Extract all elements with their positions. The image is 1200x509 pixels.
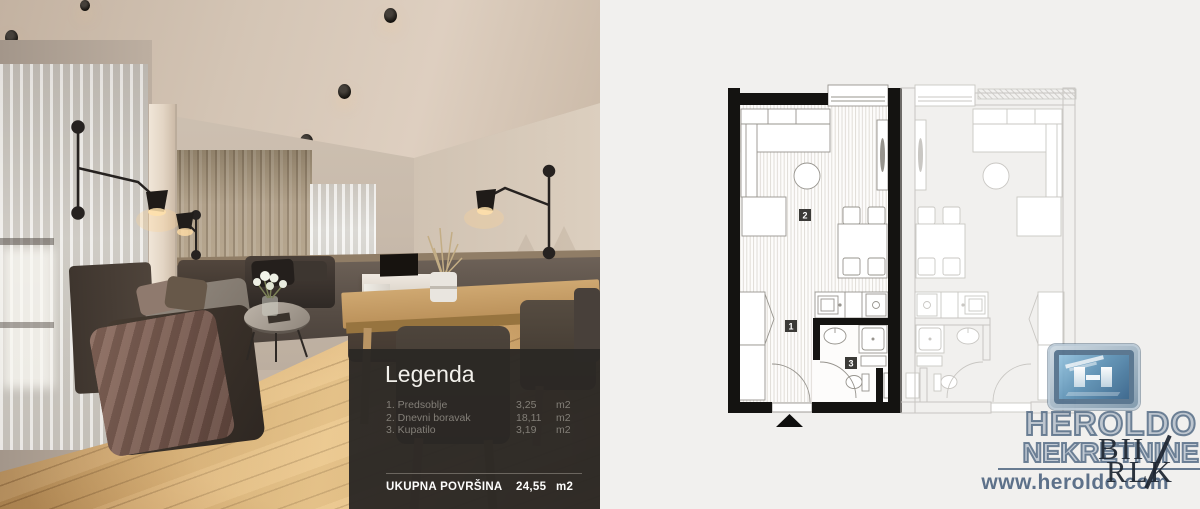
total-unit: m2	[556, 481, 582, 493]
room-area: 3,19	[516, 424, 556, 437]
total-label: UKUPNA POVRŠINA	[386, 481, 516, 493]
label-bathroom: 3	[848, 359, 853, 369]
floorplan-panel: 1 2 3	[600, 0, 1200, 509]
legend-rows: 1. Predsoblje 3,25 m2 2. Dnevni boravak …	[349, 399, 600, 437]
entrance-arrow	[776, 414, 803, 427]
window-light	[2, 248, 54, 388]
label-hallway: 1	[788, 322, 793, 332]
partner-watermark-line2: RLK	[1106, 457, 1174, 487]
legend-title: Legenda	[385, 361, 600, 387]
room-name: 2. Dnevni boravak	[386, 412, 516, 425]
legend-total-row: UKUPNA POVRŠINA 24,55 m2	[349, 474, 600, 493]
label-living-room: 2	[802, 211, 807, 221]
sofa-pillow	[251, 259, 295, 288]
room-area: 18,11	[516, 412, 556, 425]
logo-icon-frame	[1054, 350, 1134, 404]
ceiling-spotlight	[80, 0, 90, 11]
total-area: 24,55	[516, 481, 556, 493]
ceiling-spotlight	[338, 84, 351, 99]
throw-blanket	[88, 308, 237, 458]
ceiling-spotlight	[384, 8, 397, 23]
tv-screen	[380, 253, 418, 276]
legend-panel: Legenda 1. Predsoblje 3,25 m2 2. Dnevni …	[349, 349, 600, 509]
legend-row: 2. Dnevni boravak 18,11 m2	[349, 412, 600, 425]
logo-glyph-base	[1066, 392, 1121, 396]
room-area: 3,25	[516, 399, 556, 412]
window-frame	[0, 322, 54, 328]
logo-glyph-bar	[1074, 367, 1085, 386]
room-name: 3. Kupatilo	[386, 424, 516, 437]
legend-row: 1. Predsoblje 3,25 m2	[349, 399, 600, 412]
logo-glyph-bar	[1086, 375, 1101, 380]
area-unit: m2	[556, 399, 582, 412]
area-unit: m2	[556, 412, 582, 425]
ghost-furniture	[906, 85, 1064, 412]
ghost-balcony-hatch	[978, 89, 1076, 99]
window-frame	[0, 238, 54, 245]
sofa-pillow	[164, 275, 208, 312]
interior-render-photo: Legenda 1. Predsoblje 3,25 m2 2. Dnevni …	[0, 0, 600, 509]
room-name: 1. Predsoblje	[386, 399, 516, 412]
heroldo-logo-icon	[1048, 344, 1140, 410]
area-unit: m2	[556, 424, 582, 437]
real-estate-listing-image: Legenda 1. Predsoblje 3,25 m2 2. Dnevni …	[0, 0, 1200, 509]
legend-row: 3. Kupatilo 3,19 m2	[349, 424, 600, 437]
main-unit: 1 2 3	[728, 85, 902, 427]
logo-glyph-bar	[1101, 367, 1112, 386]
